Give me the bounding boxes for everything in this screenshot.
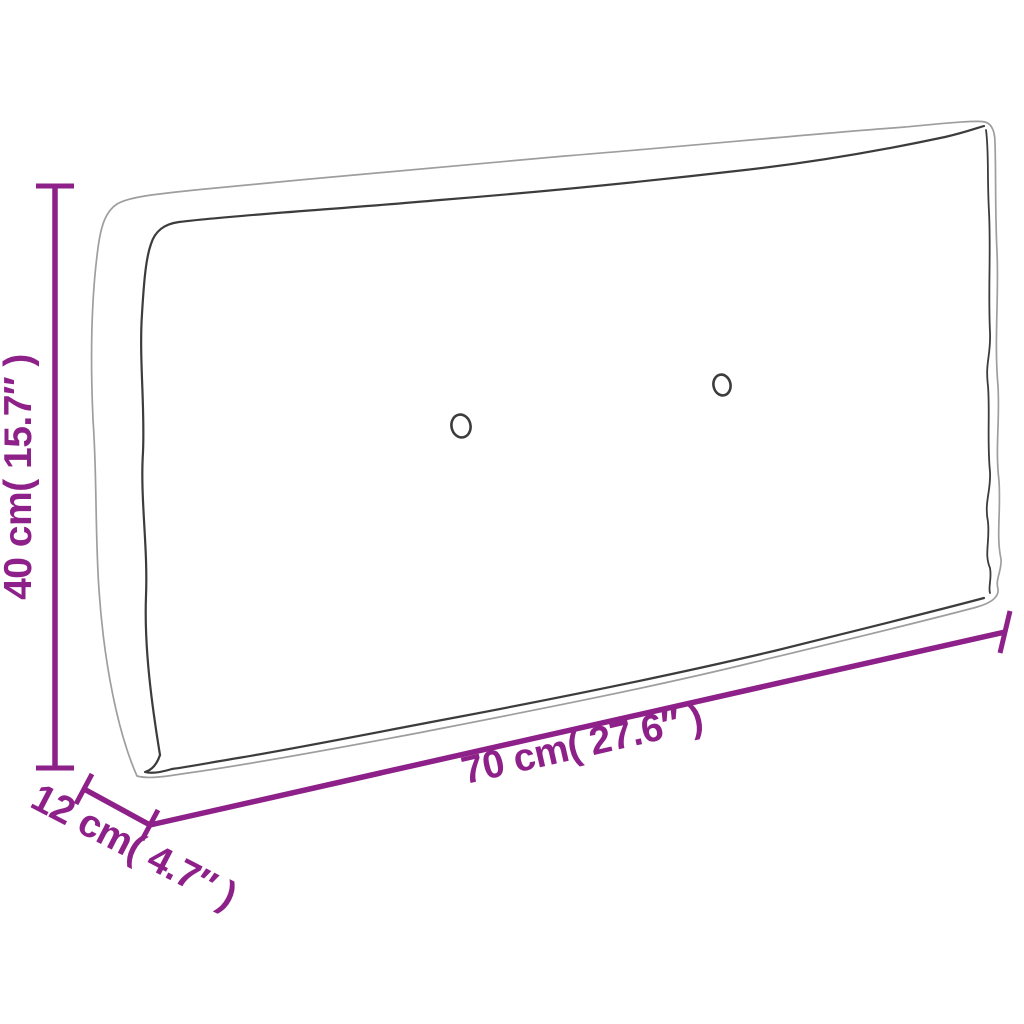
height-dimension-label: 40 cm( 15.7″ ): [0, 354, 40, 600]
product-dimension-diagram: 40 cm( 15.7″ ) 12 cm( 4.7″ ) 70 cm( 27.6…: [0, 0, 1024, 1024]
height-dimension: 40 cm( 15.7″ ): [0, 186, 74, 768]
cushion-outer-outline: [92, 121, 1001, 777]
dimension-diagram-svg: 40 cm( 15.7″ ) 12 cm( 4.7″ ) 70 cm( 27.6…: [0, 0, 1024, 1024]
depth-dimension-label: 12 cm( 4.7″ ): [24, 776, 243, 918]
depth-dimension: 12 cm( 4.7″ ): [24, 774, 243, 918]
cushion-illustration: [92, 121, 1001, 777]
